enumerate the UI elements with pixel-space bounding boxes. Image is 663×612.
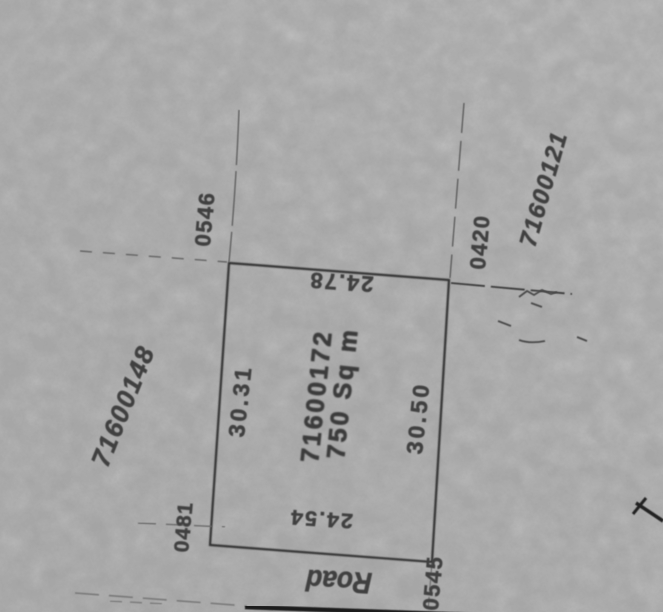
svg-text:0545: 0545 [418, 555, 448, 612]
svg-text:Road: Road [305, 563, 373, 599]
svg-text:0420: 0420 [465, 214, 495, 271]
svg-text:24.54: 24.54 [288, 505, 353, 533]
svg-text:0481: 0481 [170, 501, 197, 554]
svg-text:0546: 0546 [190, 191, 220, 248]
svg-text:24.78: 24.78 [308, 267, 375, 296]
